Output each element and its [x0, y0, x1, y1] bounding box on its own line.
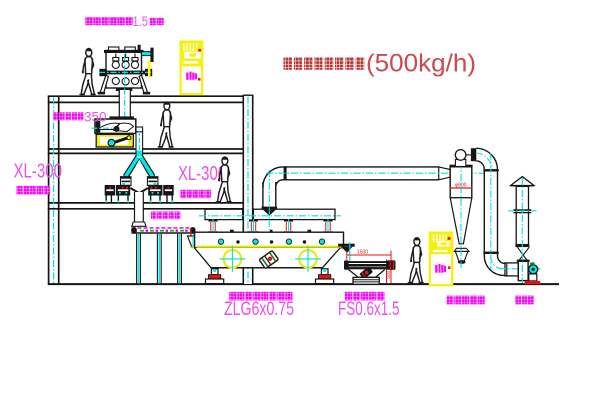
svg-text:XL-300: XL-300: [178, 163, 226, 185]
svg-text:(500kg/h): (500kg/h): [366, 50, 476, 78]
svg-text:XL-300: XL-300: [14, 161, 63, 183]
svg-text:350: 350: [84, 109, 107, 125]
svg-text:500: 500: [386, 270, 392, 279]
svg-text:1.5: 1.5: [133, 14, 149, 29]
svg-text:ZLG6x0.75: ZLG6x0.75: [224, 299, 294, 320]
svg-text:FS0.6x1.5: FS0.6x1.5: [338, 299, 400, 320]
svg-text:1500: 1500: [357, 250, 368, 256]
